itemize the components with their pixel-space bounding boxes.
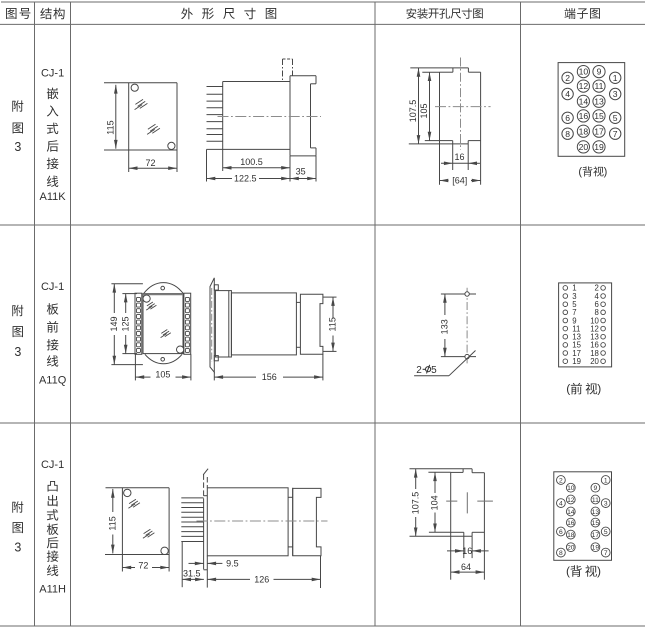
svg-text:(: ( xyxy=(566,564,570,578)
svg-text:9: 9 xyxy=(597,67,602,77)
svg-text:A11K: A11K xyxy=(40,191,67,203)
svg-text:14: 14 xyxy=(567,509,575,516)
svg-text:9: 9 xyxy=(594,485,598,492)
svg-text:13: 13 xyxy=(594,96,604,106)
svg-text:115: 115 xyxy=(106,120,116,134)
svg-text:1: 1 xyxy=(613,73,618,83)
svg-text:156: 156 xyxy=(262,372,277,382)
svg-text:4: 4 xyxy=(559,501,563,508)
svg-text:122.5: 122.5 xyxy=(234,174,257,184)
svg-text:72: 72 xyxy=(138,560,148,570)
svg-text:CJ-1: CJ-1 xyxy=(41,68,64,80)
svg-text:5: 5 xyxy=(604,529,608,536)
svg-text:19: 19 xyxy=(572,357,581,366)
svg-text:105: 105 xyxy=(155,369,170,379)
svg-text:2: 2 xyxy=(565,73,570,83)
svg-text:16: 16 xyxy=(454,152,464,162)
svg-text:14: 14 xyxy=(579,96,589,106)
svg-text:1: 1 xyxy=(604,477,608,484)
svg-text:19: 19 xyxy=(592,545,600,552)
svg-text:16: 16 xyxy=(579,111,589,121)
svg-text:10: 10 xyxy=(567,485,575,492)
svg-text:(: ( xyxy=(566,382,570,396)
svg-text:107.5: 107.5 xyxy=(408,100,418,123)
svg-text:): ) xyxy=(597,564,601,578)
svg-text:3: 3 xyxy=(14,345,21,359)
svg-text:6: 6 xyxy=(559,529,563,536)
svg-text:): ) xyxy=(597,382,601,396)
svg-text:11: 11 xyxy=(595,81,604,91)
svg-text:4: 4 xyxy=(565,89,570,99)
svg-text:105: 105 xyxy=(419,103,429,118)
svg-text:125: 125 xyxy=(120,316,130,331)
svg-text:13: 13 xyxy=(592,509,600,516)
svg-text:100.5: 100.5 xyxy=(240,157,263,167)
svg-text:CJ-1: CJ-1 xyxy=(41,459,64,471)
svg-text:15: 15 xyxy=(592,520,600,527)
svg-text:17: 17 xyxy=(594,126,604,136)
svg-text:115: 115 xyxy=(328,317,338,331)
svg-text:CJ-1: CJ-1 xyxy=(41,281,64,293)
svg-text:64: 64 xyxy=(461,562,471,572)
svg-text:7: 7 xyxy=(613,129,618,139)
svg-text:A11Q: A11Q xyxy=(39,374,67,386)
svg-text:3: 3 xyxy=(14,540,21,554)
svg-text:9.5: 9.5 xyxy=(226,558,239,568)
svg-text:126: 126 xyxy=(254,574,269,584)
svg-text:35: 35 xyxy=(296,166,306,176)
svg-text:16: 16 xyxy=(567,520,575,527)
svg-text:7: 7 xyxy=(604,550,608,557)
svg-text:6: 6 xyxy=(565,113,570,123)
svg-text:(: ( xyxy=(578,166,582,178)
svg-text:115: 115 xyxy=(107,516,117,530)
svg-text:5: 5 xyxy=(613,113,618,123)
svg-text:31.5: 31.5 xyxy=(183,569,201,579)
svg-text:[64]: [64] xyxy=(452,176,467,186)
svg-text:72: 72 xyxy=(145,158,155,168)
svg-text:12: 12 xyxy=(567,497,575,504)
svg-text:12: 12 xyxy=(579,81,589,91)
svg-text:10: 10 xyxy=(579,67,589,77)
svg-text:8: 8 xyxy=(565,129,570,139)
svg-text:19: 19 xyxy=(594,142,604,152)
svg-text:5: 5 xyxy=(431,365,437,376)
svg-text:A11H: A11H xyxy=(39,584,66,596)
svg-text:20: 20 xyxy=(590,357,599,366)
svg-text:3: 3 xyxy=(613,89,618,99)
svg-text:104: 104 xyxy=(430,495,440,510)
svg-text:18: 18 xyxy=(567,532,575,539)
svg-text:16: 16 xyxy=(462,546,472,556)
svg-text:3: 3 xyxy=(604,501,608,508)
svg-text:8: 8 xyxy=(559,550,563,557)
svg-text:2: 2 xyxy=(559,477,563,484)
svg-text:3: 3 xyxy=(14,140,21,154)
svg-text:20: 20 xyxy=(579,142,589,152)
svg-text:18: 18 xyxy=(579,126,589,136)
svg-text:17: 17 xyxy=(592,532,600,539)
svg-text:15: 15 xyxy=(594,111,604,121)
svg-text:20: 20 xyxy=(567,545,575,552)
svg-text:): ) xyxy=(604,166,608,178)
svg-text:107.5: 107.5 xyxy=(410,492,420,515)
svg-text:149: 149 xyxy=(109,316,119,331)
svg-text:133: 133 xyxy=(440,319,450,334)
svg-text:11: 11 xyxy=(592,497,599,504)
svg-text:2: 2 xyxy=(416,365,422,376)
